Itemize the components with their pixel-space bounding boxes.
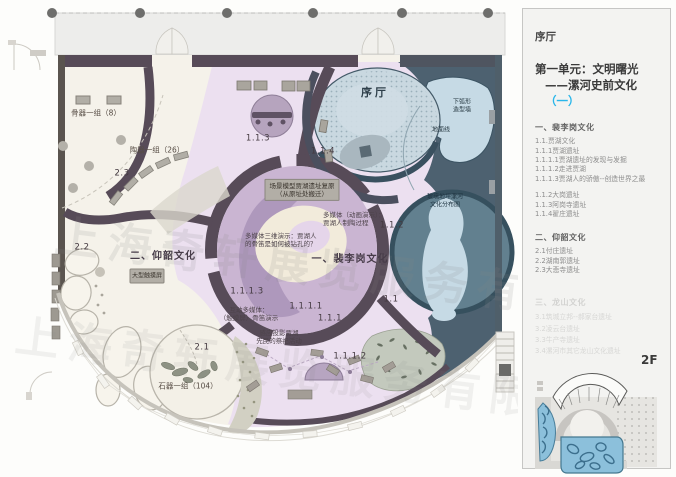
list-item: 1.1.1贾湖遗址 — [535, 147, 659, 156]
section-title: 二、仰韶文化 — [535, 232, 659, 243]
panel-unit-subtitle: ——漯河史前文化（一） — [545, 77, 659, 109]
list-item: 1.1.贾湖文化 — [535, 137, 659, 146]
section-title: 三、龙山文化 — [535, 297, 659, 308]
list-item: 1.1.1.2走进贾湖 — [535, 165, 659, 174]
list-item: 3.1筑城立邦--郝家台遗址 — [535, 312, 659, 323]
section-title: 一、裴李岗文化 — [535, 122, 659, 133]
list-item: 1.1.4翟庄遗址 — [535, 210, 659, 219]
section-longshan: 三、龙山文化 3.1筑城立邦--郝家台遗址 3.2凌云台遗址 3.3牛产寺遗址 … — [535, 297, 659, 357]
list-item: 2.2湖南郭遗址 — [535, 257, 659, 266]
list-item: 3.3牛产寺遗址 — [535, 335, 659, 346]
floor-plan-drawing — [0, 0, 518, 477]
list-item: 1.1.2大岗遗址 — [535, 191, 659, 200]
key-plan-minimap — [525, 361, 667, 477]
section-peiligang: 一、裴李岗文化 1.1.贾湖文化 1.1.1贾湖遗址 1.1.1.1贾湖遗址的发… — [535, 122, 659, 219]
floor-plan: 上海奇轩展览服务有限公司 上海奇轩展览服务有限公司 骨器一组（8） 陶器一组（2… — [0, 0, 518, 477]
legend-panel: 序厅 第一单元：文明曙光 ——漯河史前文化（一） 一、裴李岗文化 1.1.贾湖文… — [522, 8, 671, 469]
subtitle-accent: （一） — [545, 94, 580, 108]
corridor-and-columns — [47, 8, 505, 55]
list-item: 2.3大悲寺遗址 — [535, 266, 659, 275]
list-item: 1.1.3阿岗寺遗址 — [535, 201, 659, 210]
list-item: 1.1.1.3贾湖人的骄傲--创造世界之最 — [535, 175, 659, 184]
panel-unit-title: 第一单元：文明曙光 — [535, 61, 659, 77]
list-item: 2.1付庄遗址 — [535, 247, 659, 256]
scene-spiral — [217, 166, 377, 334]
drawing-sheet: 上海奇轩展览服务有限公司 上海奇轩展览服务有限公司 骨器一组（8） 陶器一组（2… — [0, 0, 676, 477]
list-item: 1.1.1.1贾湖遗址的发现与发掘 — [535, 156, 659, 165]
section-yangshao: 二、仰韶文化 2.1付庄遗址 2.2湖南郭遗址 2.3大悲寺遗址 — [535, 232, 659, 275]
list-item: 3.2凌云台遗址 — [535, 324, 659, 335]
subtitle-prefix: ——漯河史前文化 — [545, 78, 637, 92]
panel-prologue: 序厅 — [535, 29, 659, 44]
